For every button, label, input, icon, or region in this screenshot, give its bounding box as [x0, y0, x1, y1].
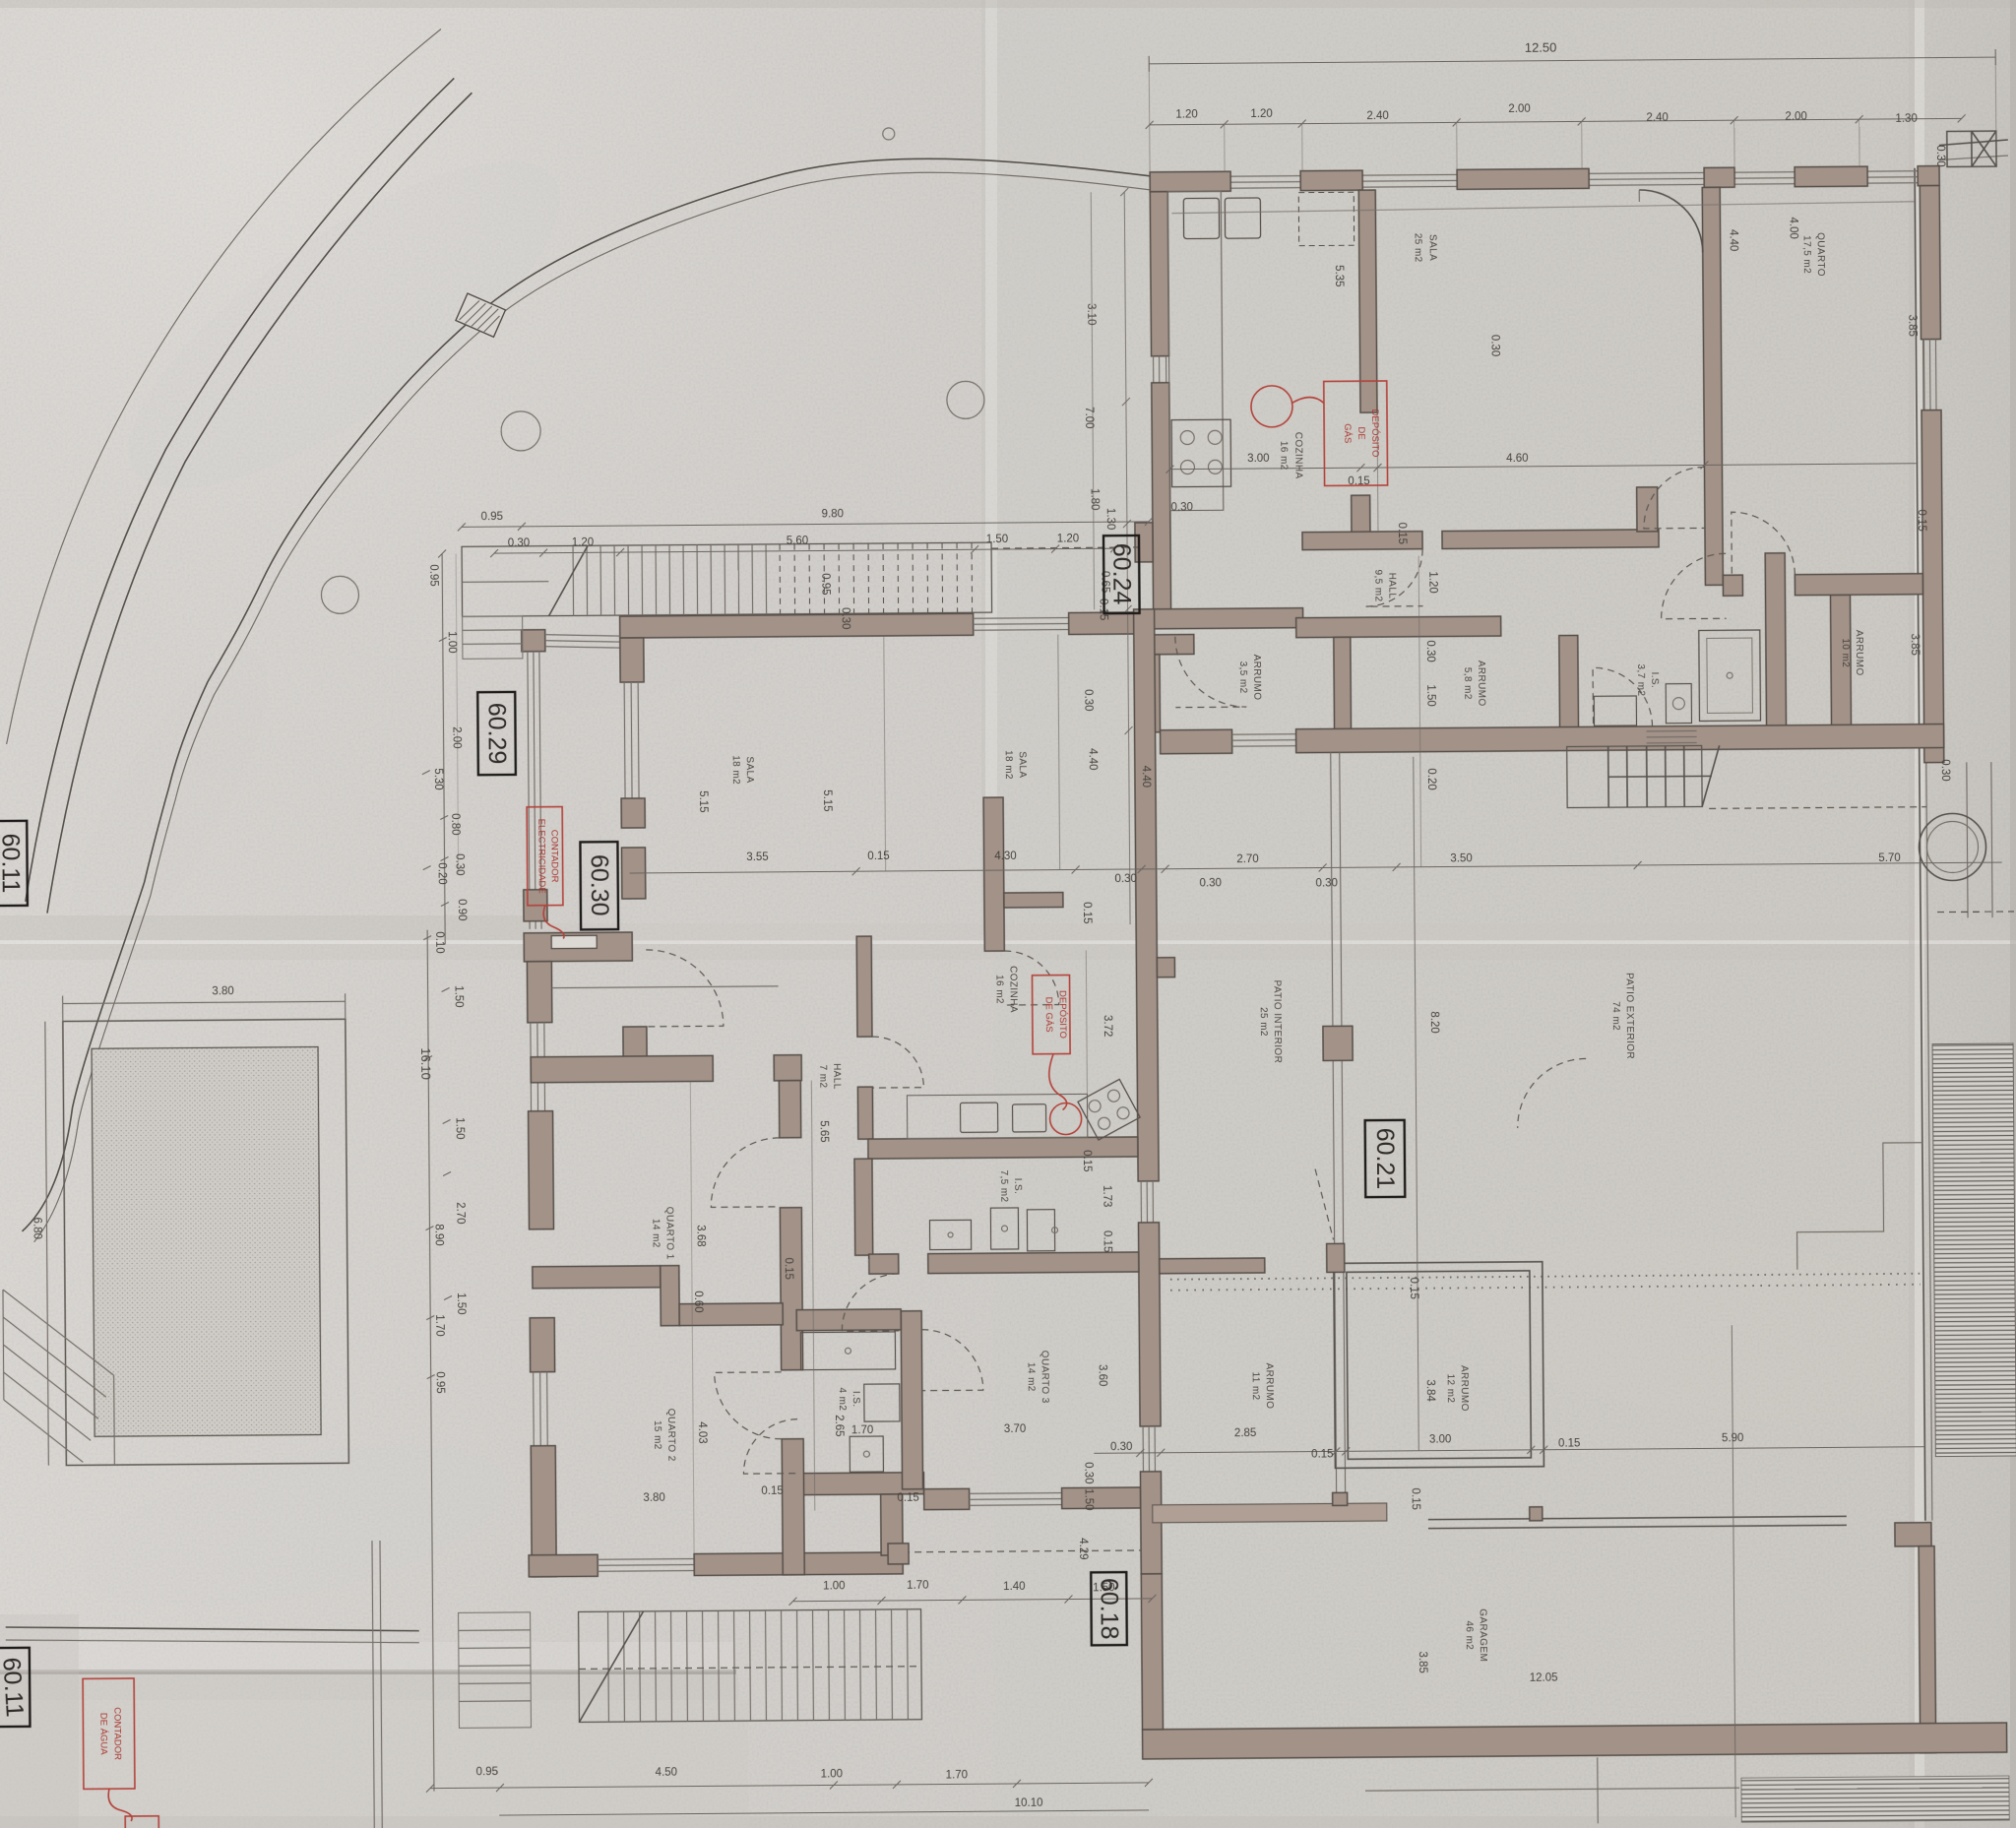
svg-text:1.30: 1.30	[1104, 508, 1116, 530]
svg-text:4.40: 4.40	[1140, 766, 1152, 788]
svg-text:3.70: 3.70	[1004, 1423, 1026, 1435]
svg-text:3.60: 3.60	[1097, 1364, 1108, 1386]
svg-text:8.90: 8.90	[432, 1224, 444, 1245]
svg-text:COZINHA: COZINHA	[1007, 966, 1018, 1013]
svg-text:16.10: 16.10	[418, 1047, 433, 1080]
svg-text:4.29: 4.29	[1077, 1538, 1089, 1559]
svg-text:0.30: 0.30	[1934, 145, 1946, 166]
svg-text:ARRUMO: ARRUMO	[1264, 1362, 1275, 1409]
svg-text:1.20: 1.20	[1175, 108, 1197, 120]
svg-text:QUARTO 2: QUARTO 2	[665, 1409, 676, 1462]
svg-text:3.72: 3.72	[1102, 1015, 1113, 1037]
svg-text:ARRUMO: ARRUMO	[1854, 630, 1864, 676]
svg-text:0.15: 0.15	[761, 1485, 783, 1497]
svg-text:3.55: 3.55	[746, 851, 768, 863]
svg-text:ARRUMO: ARRUMO	[1459, 1365, 1470, 1412]
svg-text:1.20: 1.20	[1250, 108, 1272, 120]
svg-text:5.60: 5.60	[787, 536, 808, 547]
svg-text:0.95: 0.95	[476, 1766, 498, 1778]
svg-text:12.50: 12.50	[1525, 40, 1557, 55]
svg-text:0.90: 0.90	[456, 899, 468, 920]
svg-text:CONTADOR: CONTADOR	[548, 830, 559, 883]
svg-text:12 m2: 12 m2	[1445, 1374, 1456, 1404]
svg-text:14 m2: 14 m2	[1026, 1362, 1037, 1392]
svg-text:0.30: 0.30	[454, 853, 466, 875]
svg-text:0.30: 0.30	[840, 607, 851, 629]
svg-text:5.90: 5.90	[1722, 1432, 1743, 1444]
svg-text:2.00: 2.00	[1785, 111, 1806, 123]
svg-text:3.85: 3.85	[1909, 634, 1921, 656]
svg-text:0.95: 0.95	[819, 573, 831, 595]
svg-text:1.00: 1.00	[446, 631, 458, 653]
svg-text:5.15: 5.15	[821, 789, 833, 811]
svg-text:SALA: SALA	[744, 756, 755, 783]
svg-text:1.00: 1.00	[823, 1580, 845, 1592]
svg-text:5.65: 5.65	[818, 1120, 830, 1142]
svg-text:0.15: 0.15	[783, 1258, 794, 1280]
svg-text:DEPÓSITO: DEPÓSITO	[1369, 410, 1380, 458]
svg-text:10 m2: 10 m2	[1840, 638, 1851, 667]
svg-text:16 m2: 16 m2	[993, 975, 1004, 1004]
svg-text:2.40: 2.40	[1646, 112, 1668, 124]
svg-text:3.68: 3.68	[694, 1225, 706, 1246]
svg-text:4.00: 4.00	[1787, 217, 1798, 238]
svg-text:2.70: 2.70	[454, 1202, 466, 1224]
svg-text:18 m2: 18 m2	[730, 755, 741, 785]
svg-text:1.73: 1.73	[1101, 1185, 1112, 1207]
svg-text:4.03: 4.03	[696, 1421, 708, 1443]
svg-text:4.50: 4.50	[656, 1767, 677, 1779]
svg-text:5.30: 5.30	[432, 768, 444, 789]
svg-text:4.40: 4.40	[1087, 748, 1099, 770]
svg-text:8.20: 8.20	[1428, 1011, 1440, 1033]
svg-text:3.50: 3.50	[1450, 852, 1472, 864]
svg-text:QUARTO 3: QUARTO 3	[1039, 1351, 1049, 1404]
svg-text:3.00: 3.00	[1247, 453, 1269, 465]
svg-text:1.50: 1.50	[986, 534, 1008, 545]
svg-text:46 m2: 46 m2	[1464, 1620, 1475, 1650]
svg-text:60.24: 60.24	[1107, 543, 1135, 605]
svg-text:0.15: 0.15	[1396, 523, 1408, 544]
svg-text:0.15: 0.15	[1102, 1230, 1113, 1252]
svg-text:1.50: 1.50	[454, 1117, 466, 1139]
svg-text:0.15: 0.15	[1311, 1448, 1333, 1460]
svg-text:2.00: 2.00	[1508, 103, 1530, 115]
svg-text:0.15: 0.15	[1408, 1278, 1419, 1299]
svg-text:0.30: 0.30	[1424, 640, 1436, 662]
svg-text:ARRUMO: ARRUMO	[1476, 661, 1486, 707]
svg-text:1.50: 1.50	[453, 985, 465, 1007]
svg-text:12.05: 12.05	[1530, 1672, 1558, 1684]
svg-text:1.20: 1.20	[1426, 571, 1438, 593]
svg-text:3,5 m2: 3,5 m2	[1237, 662, 1248, 694]
svg-text:0.15: 0.15	[1410, 1488, 1421, 1510]
svg-text:60.30: 60.30	[586, 854, 613, 916]
svg-text:4 m2: 4 m2	[837, 1387, 848, 1411]
svg-text:COZINHA: COZINHA	[1292, 432, 1303, 479]
svg-text:5.15: 5.15	[697, 790, 709, 812]
svg-text:9,5 m2: 9,5 m2	[1372, 570, 1383, 602]
svg-text:GÁS: GÁS	[1342, 423, 1353, 443]
svg-text:0.15: 0.15	[897, 1492, 918, 1504]
svg-text:0.30: 0.30	[508, 537, 530, 549]
svg-text:3.00: 3.00	[1429, 1433, 1451, 1445]
svg-text:QUARTO: QUARTO	[1815, 232, 1826, 277]
svg-text:1.70: 1.70	[851, 1424, 873, 1436]
svg-text:0.80: 0.80	[449, 813, 461, 835]
svg-text:0.10: 0.10	[433, 931, 445, 953]
svg-text:3.84: 3.84	[1424, 1379, 1436, 1402]
svg-text:74 m2: 74 m2	[1610, 1001, 1621, 1031]
svg-text:0.15: 0.15	[1558, 1437, 1580, 1449]
svg-text:0.20: 0.20	[436, 862, 448, 884]
svg-text:CONTADOR: CONTADOR	[111, 1707, 122, 1760]
svg-text:0.60: 0.60	[692, 1291, 704, 1312]
svg-text:5.35: 5.35	[1333, 265, 1345, 286]
svg-text:HALL: HALL	[1386, 573, 1397, 599]
svg-text:7,5 m2: 7,5 m2	[998, 1170, 1009, 1203]
svg-text:PATIO INTERIOR: PATIO INTERIOR	[1272, 979, 1284, 1063]
svg-text:0.30: 0.30	[1939, 759, 1951, 781]
svg-text:1.30: 1.30	[1895, 113, 1917, 125]
svg-text:10.10: 10.10	[1015, 1797, 1043, 1809]
svg-text:I.S.: I.S.	[1012, 1178, 1023, 1195]
svg-text:1.50: 1.50	[1424, 684, 1436, 706]
svg-text:0.30: 0.30	[1110, 1441, 1132, 1453]
svg-text:0.15: 0.15	[867, 851, 889, 862]
svg-text:60.11: 60.11	[0, 833, 25, 893]
svg-text:0.30: 0.30	[1114, 873, 1136, 885]
svg-text:4.30: 4.30	[994, 851, 1016, 862]
svg-text:25 m2: 25 m2	[1258, 1007, 1269, 1037]
svg-text:I.S.: I.S.	[1649, 671, 1660, 688]
svg-text:0.30: 0.30	[1316, 877, 1338, 889]
svg-text:18 m2: 18 m2	[1003, 750, 1014, 780]
svg-text:1.00: 1.00	[821, 1768, 843, 1780]
svg-text:2.40: 2.40	[1366, 110, 1388, 122]
svg-text:3,7 m2: 3,7 m2	[1635, 663, 1646, 696]
svg-text:1.70: 1.70	[907, 1580, 928, 1592]
svg-text:2.65: 2.65	[833, 1415, 845, 1436]
svg-text:25 m2: 25 m2	[1413, 233, 1423, 263]
svg-text:PATIO EXTERIOR: PATIO EXTERIOR	[1623, 973, 1635, 1059]
svg-text:0.30: 0.30	[1200, 877, 1222, 889]
svg-text:3.85: 3.85	[1906, 315, 1918, 337]
svg-text:0.95: 0.95	[427, 564, 439, 586]
svg-text:1.70: 1.70	[946, 1769, 968, 1781]
svg-text:3.80: 3.80	[643, 1492, 664, 1504]
svg-text:ELECTRICIDADE: ELECTRICIDADE	[535, 819, 547, 894]
svg-text:1.50: 1.50	[1083, 1488, 1095, 1510]
svg-text:0.20: 0.20	[1425, 768, 1437, 789]
svg-text:60.29: 60.29	[482, 703, 510, 765]
svg-text:3.10: 3.10	[1085, 303, 1097, 325]
svg-text:DE: DE	[1355, 427, 1366, 440]
svg-text:0.95: 0.95	[481, 511, 503, 523]
svg-text:1.80: 1.80	[1089, 488, 1101, 510]
svg-text:3.80: 3.80	[212, 985, 233, 997]
svg-text:3.85: 3.85	[1417, 1651, 1428, 1672]
svg-text:I.S.: I.S.	[850, 1391, 861, 1408]
svg-text:1.40: 1.40	[1003, 1581, 1025, 1593]
svg-text:2.85: 2.85	[1234, 1427, 1256, 1439]
svg-text:4.60: 4.60	[1506, 453, 1528, 465]
svg-text:2.70: 2.70	[1236, 853, 1258, 865]
svg-text:4.40: 4.40	[1728, 229, 1739, 251]
svg-text:ARRUMO: ARRUMO	[1251, 655, 1262, 701]
svg-text:1.70: 1.70	[433, 1314, 445, 1336]
svg-text:5,8 m2: 5,8 m2	[1462, 667, 1473, 700]
svg-text:2.00: 2.00	[450, 726, 462, 748]
svg-text:1.20: 1.20	[1057, 533, 1079, 544]
svg-text:0.15: 0.15	[1081, 902, 1093, 923]
svg-text:7 m2: 7 m2	[817, 1065, 828, 1089]
svg-text:60.18: 60.18	[1095, 1578, 1122, 1640]
svg-text:14 m2: 14 m2	[650, 1219, 661, 1248]
svg-text:6.80: 6.80	[31, 1218, 42, 1239]
svg-text:0.95: 0.95	[434, 1371, 446, 1393]
svg-text:DE ÁGUA: DE ÁGUA	[97, 1713, 108, 1756]
svg-text:GARAGEM: GARAGEM	[1478, 1608, 1488, 1662]
svg-text:0.30: 0.30	[1488, 335, 1500, 356]
svg-text:0.30: 0.30	[1082, 1462, 1094, 1483]
svg-text:5.70: 5.70	[1878, 852, 1900, 864]
svg-text:DE GÁS: DE GÁS	[1043, 997, 1054, 1033]
svg-text:15 m2: 15 m2	[652, 1420, 662, 1450]
svg-text:17,5 m2: 17,5 m2	[1801, 235, 1812, 274]
svg-text:SALA: SALA	[1427, 234, 1438, 261]
svg-text:11 m2: 11 m2	[1250, 1371, 1261, 1400]
svg-text:SALA: SALA	[1017, 751, 1028, 778]
svg-text:0.30: 0.30	[1171, 502, 1193, 514]
svg-text:1.20: 1.20	[572, 536, 594, 548]
svg-text:QUARTO 1: QUARTO 1	[663, 1207, 674, 1260]
svg-text:16 m2: 16 m2	[1278, 441, 1289, 471]
svg-text:60.21: 60.21	[1371, 1128, 1399, 1190]
svg-text:0.30: 0.30	[1082, 689, 1094, 711]
svg-text:0.15: 0.15	[1081, 1150, 1093, 1171]
svg-text:0.15: 0.15	[1916, 509, 1927, 531]
svg-text:DEPÓSITO: DEPÓSITO	[1057, 990, 1068, 1039]
svg-text:1.50: 1.50	[455, 1292, 467, 1314]
svg-text:7.00: 7.00	[1083, 407, 1095, 428]
svg-text:9.80: 9.80	[822, 508, 844, 520]
svg-text:60.11: 60.11	[0, 1657, 29, 1718]
svg-text:HALL: HALL	[831, 1063, 842, 1090]
